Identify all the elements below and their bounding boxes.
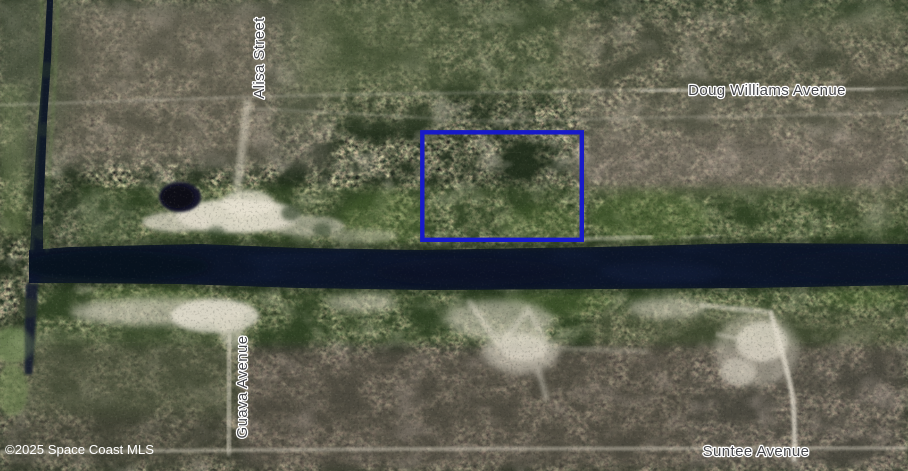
svg-text:©2025 Space Coast MLS: ©2025 Space Coast MLS xyxy=(5,442,154,457)
svg-text:Guava Avenue: Guava Avenue xyxy=(234,336,251,439)
svg-text:Alisa Street: Alisa Street xyxy=(251,17,268,99)
svg-text:Suntee Avenue: Suntee Avenue xyxy=(703,443,810,460)
svg-text:Doug Williams Avenue: Doug Williams Avenue xyxy=(688,82,846,99)
